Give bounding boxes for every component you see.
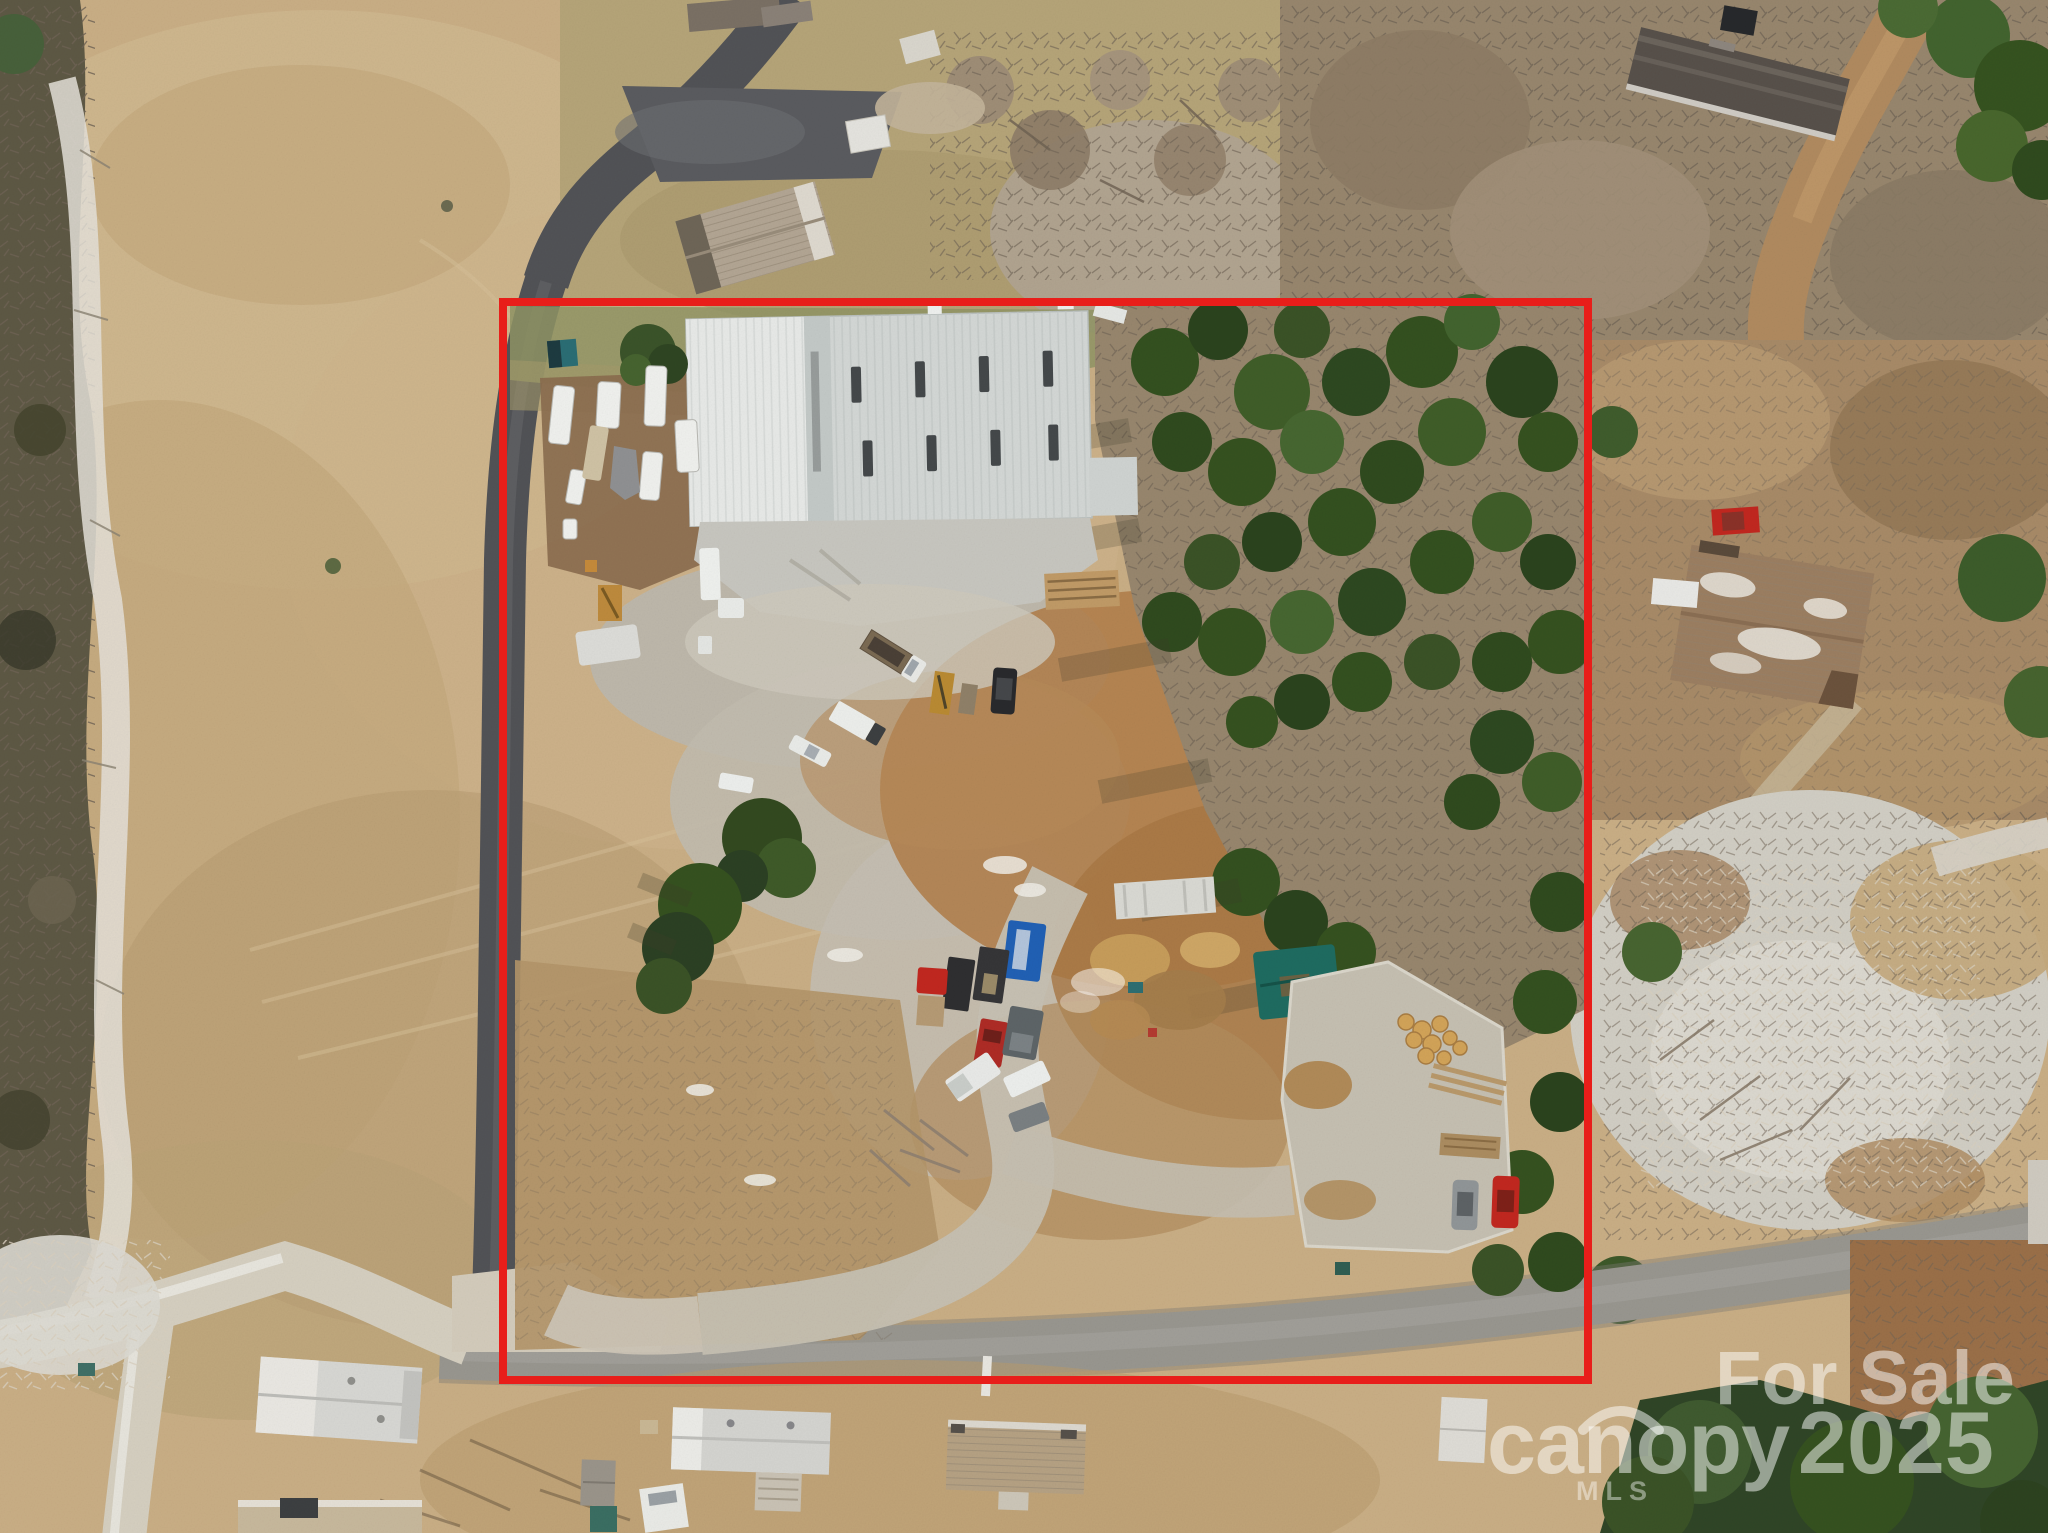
watermark-mls-text: MLS — [1576, 1476, 1654, 1506]
watermark-year-text: 2025 — [1798, 1393, 1994, 1492]
aerial-photo-stage: For Sale canopy 2025 MLS — [0, 0, 2048, 1533]
aerial-photo: For Sale canopy 2025 MLS — [0, 0, 2048, 1533]
photo-grain-overlay — [0, 0, 2048, 1533]
